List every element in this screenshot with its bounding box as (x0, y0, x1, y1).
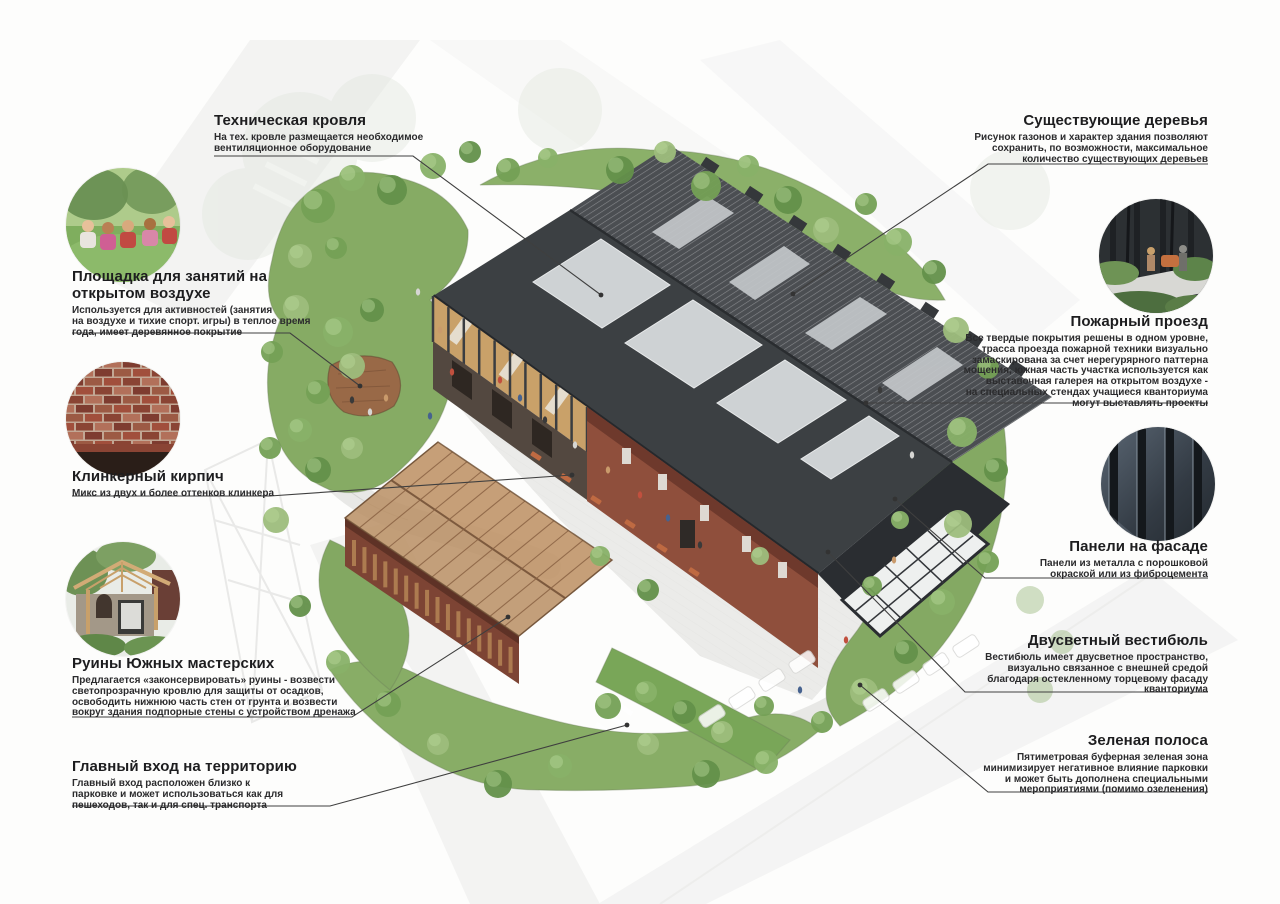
annotation-title: Двусветный вестибюль (908, 632, 1208, 649)
annotation-title: Руины Южных мастерских (72, 655, 402, 672)
annotation-body: Вестибюль имеет двусветное пространство,… (908, 653, 1208, 696)
annotation-clinker-brick: Клинкерный кирпич Микс из двух и более о… (72, 468, 392, 500)
annotation-ruins: Руины Южных мастерских Предлагается «зак… (72, 655, 402, 719)
annotation-existing-trees: Существующие деревья Рисунок газонов и х… (908, 112, 1208, 165)
annotation-title: Зеленая полоса (908, 732, 1208, 749)
annotation-body: Микс из двух и более оттенков клинкера (72, 489, 392, 500)
annotation-title: Главный вход на территорию (72, 758, 392, 775)
presentation-board: Техническая кровля На тех. кровле размещ… (0, 0, 1280, 904)
annotation-title: Существующие деревья (908, 112, 1208, 129)
facade-panels-photo (1101, 427, 1215, 541)
annotation-tech-roof: Техническая кровля На тех. кровле размещ… (214, 112, 474, 155)
annotation-title: Панели на фасаде (908, 538, 1208, 555)
annotation-outdoor-area: Площадка для занятий на открытом воздухе… (72, 268, 392, 339)
annotation-body: Рисунок газонов и характер здания позвол… (908, 133, 1208, 165)
annotation-body: Используется для активностей (занятия на… (72, 306, 392, 338)
clinker-brick-photo (66, 362, 180, 476)
ruins-photo (66, 542, 180, 656)
annotation-fire-lane: Пожарный проезд Все твердые покрытия реш… (908, 313, 1208, 410)
annotation-facade-panels: Панели на фасаде Панели из металла с пор… (908, 538, 1208, 581)
annotation-title: Клинкерный кирпич (72, 468, 392, 485)
annotation-title: Пожарный проезд (908, 313, 1208, 330)
annotation-body: На тех. кровле размещается необходимое в… (214, 133, 474, 155)
children-outdoor-photo (66, 168, 180, 282)
annotation-vestibule: Двусветный вестибюль Вестибюль имеет дву… (908, 632, 1208, 696)
annotation-title: Площадка для занятий на открытом воздухе (72, 268, 392, 302)
annotation-body: Пятиметровая буферная зеленая зона миним… (908, 753, 1208, 796)
annotation-main-entrance: Главный вход на территорию Главный вход … (72, 758, 392, 811)
annotation-body: Главный вход расположен близко к парковк… (72, 779, 392, 811)
trees-near-facade-photo (1099, 199, 1213, 313)
annotation-green-strip: Зеленая полоса Пятиметровая буферная зел… (908, 732, 1208, 796)
annotation-title: Техническая кровля (214, 112, 474, 129)
annotation-body: Панели из металла с порошковой окраской … (908, 559, 1208, 581)
annotation-body: Предлагается «законсервировать» руины - … (72, 676, 402, 719)
annotation-body: Все твердые покрытия решены в одном уров… (908, 334, 1208, 410)
